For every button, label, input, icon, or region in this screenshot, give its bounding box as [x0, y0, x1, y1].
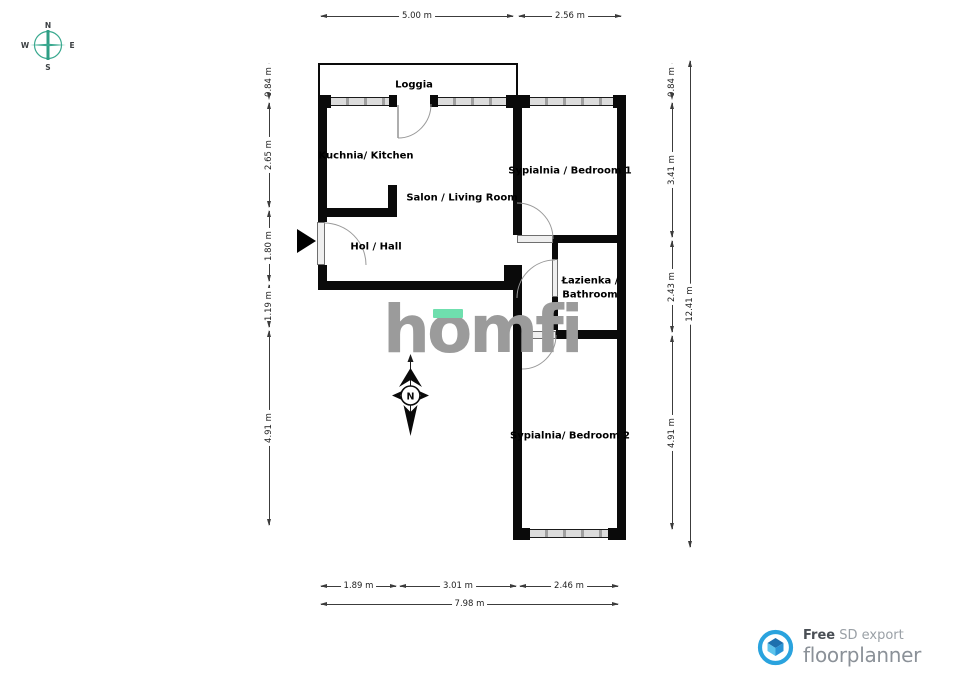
dim-right-1: 0.84 m	[668, 63, 677, 100]
dim-bottom-total: 7.98 m	[320, 600, 619, 609]
dim-left-2: 2.65 m	[265, 102, 274, 208]
window-band	[530, 97, 613, 106]
window-band	[530, 529, 608, 538]
door-post	[430, 95, 438, 107]
homfi-logo: homfi	[383, 297, 580, 363]
homfi-logo-text: o	[427, 291, 469, 368]
room-label-bedroom1: Sypialnia / Bedroom 1	[508, 164, 632, 178]
svg-text:W: W	[21, 41, 30, 50]
wall	[513, 528, 530, 540]
dim-right-4: 4.91 m	[668, 335, 677, 530]
svg-text:E: E	[69, 41, 74, 50]
dim-bottom-2: 3.01 m	[399, 582, 517, 591]
homfi-logo-text: mfi	[469, 297, 580, 363]
room-label-hall: Hol / Hall	[350, 240, 401, 254]
dim-right-2: 3.41 m	[668, 102, 677, 238]
window-band	[331, 97, 389, 106]
room-label-bedroom2: Sypialnia/ Bedroom 2	[510, 429, 630, 443]
svg-text:S: S	[45, 63, 50, 72]
dim-top-2: 2.56 m	[518, 12, 622, 21]
floorplanner-logo: Free SD export floorplanner	[757, 629, 921, 666]
dim-bottom-1: 1.89 m	[320, 582, 397, 591]
dim-bottom-3: 2.46 m	[519, 582, 619, 591]
bedroom1-door-leaf	[517, 235, 553, 243]
dim-right-total: 12.41 m	[686, 60, 695, 548]
homfi-logo-text: h	[383, 297, 427, 363]
wall	[553, 235, 626, 243]
kitchen-partition-wall	[318, 208, 397, 217]
svg-text:N: N	[45, 21, 51, 30]
wall	[318, 281, 510, 290]
kitchen-partition-wall	[388, 185, 397, 210]
dim-left-5: 4.91 m	[265, 330, 274, 526]
balcony-door-arc	[398, 104, 431, 138]
bathroom-wall	[552, 243, 558, 259]
free-sd-export-label: Free SD export	[803, 629, 921, 643]
homfi-accent-bar	[433, 309, 463, 318]
floorplanner-logo-text: Free SD export floorplanner	[803, 629, 921, 665]
room-label-kitchen: Kuchnia/ Kitchen	[318, 149, 413, 163]
bedroom1-door-arc	[517, 203, 553, 239]
room-label-bathroom-line1: Łazienka /	[562, 275, 619, 289]
dim-top-1: 5.00 m	[320, 12, 514, 21]
floorplanner-brand-label: floorplanner	[803, 644, 921, 666]
dim-left-1: 0.84 m	[265, 63, 274, 100]
compass-rose-icon: N S W E	[18, 16, 80, 78]
free-label: Free	[803, 628, 835, 643]
svg-text:N: N	[407, 392, 415, 403]
wall	[608, 528, 626, 540]
dim-left-4: 1.19 m	[265, 284, 274, 328]
floor-plan-canvas: N S W E	[0, 0, 960, 679]
dim-left-3: 1.80 m	[265, 210, 274, 282]
window-band	[438, 97, 506, 106]
sd-export-label: SD export	[839, 628, 904, 643]
entrance-door-leaf	[317, 222, 325, 265]
entrance-arrow-icon	[297, 229, 316, 253]
door-post	[389, 95, 397, 107]
room-label-loggia: Loggia	[395, 78, 433, 92]
floorplanner-logo-icon	[757, 629, 794, 666]
room-label-living-room: Salon / Living Room	[406, 191, 517, 205]
dim-right-3: 2.43 m	[668, 240, 677, 333]
